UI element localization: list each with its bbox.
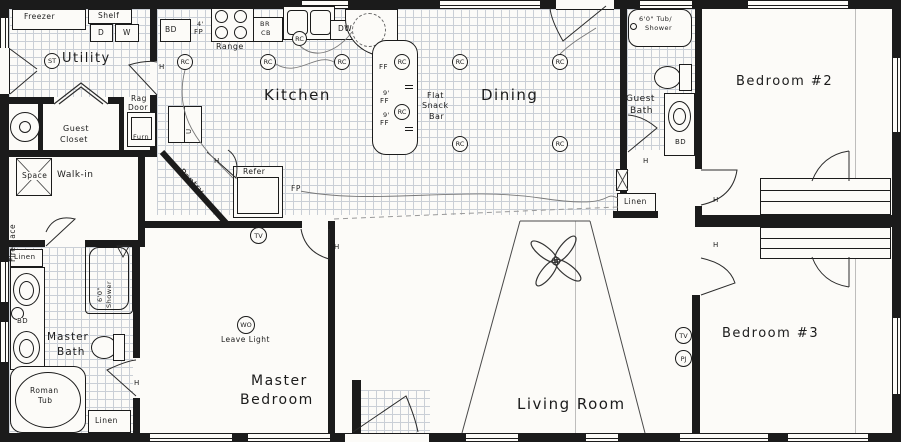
- outlet-tick: [405, 127, 413, 128]
- dishwasher-label: DW: [338, 25, 352, 33]
- window: [248, 433, 330, 442]
- bd-label-guest-bath: BD: [675, 139, 686, 146]
- upper-cabinet-door-split: [184, 106, 185, 143]
- bedroom2-closet-door: [812, 151, 849, 181]
- symbol-text: RC: [264, 58, 273, 66]
- window: [892, 318, 901, 394]
- wall-guest-bath-right-a: [695, 9, 702, 169]
- snack-bar-label-1: Flat: [427, 92, 444, 100]
- window: [466, 433, 518, 442]
- bedroom3-closet-door: [812, 257, 849, 287]
- nine-ft-label-1: 9': [383, 90, 390, 97]
- room-label-dining: Dining: [481, 88, 538, 103]
- master-toilet-tank: [113, 334, 125, 361]
- hinge-label: H: [643, 158, 649, 165]
- sink-bowl: [310, 10, 331, 35]
- symbol-text: RC: [398, 58, 407, 66]
- bedroom3-door: [701, 258, 735, 295]
- refrigerator-label: Refer: [243, 168, 265, 176]
- roman-tub-label-1: Roman: [30, 387, 59, 395]
- wall-utility-bottom-b: [108, 97, 124, 104]
- room-label-master-bath-2: Bath: [57, 347, 85, 358]
- receptacle-symbol: RC: [394, 104, 410, 120]
- leave-light-note: Leave Light: [221, 336, 270, 344]
- freezer-label: Freezer: [24, 13, 55, 21]
- burner: [234, 26, 247, 39]
- wall-master-bath-right-a: [133, 247, 140, 358]
- hinge-label: H: [134, 380, 140, 387]
- vent-box: [616, 169, 628, 191]
- receptacle-symbol: RC: [292, 31, 307, 46]
- master-shower-label-1: 6'0": [97, 262, 104, 302]
- ceiling-light-fixture-inner: [19, 121, 31, 133]
- tv-outlet-symbol: TV: [250, 227, 267, 244]
- symbol-text: RC: [338, 58, 347, 66]
- thermostat-symbol: ST: [44, 53, 60, 69]
- master-bedroom-door: [301, 229, 329, 259]
- closet-shelf-line: [760, 248, 891, 249]
- receptacle-symbol: RC: [260, 54, 276, 70]
- hinge-label: H: [159, 64, 165, 71]
- rag-door-label-2: Door: [128, 104, 148, 112]
- window: [748, 0, 848, 9]
- guest-toilet-tank: [679, 64, 692, 91]
- floor-plan: Utility Kitchen Dining Living Room Maste…: [0, 0, 901, 442]
- hinge-label: H: [214, 158, 220, 165]
- burner: [215, 26, 228, 39]
- hinge-label: H: [713, 242, 719, 249]
- room-label-bedroom3: Bedroom #3: [722, 327, 819, 340]
- ridge-line-bedroom3: [855, 258, 856, 433]
- upper-cabinet-label: U: [186, 116, 193, 134]
- filler-width-label: 4': [197, 21, 204, 28]
- symbol-text: RC: [556, 140, 565, 148]
- rear-door-opening: [556, 0, 614, 10]
- room-label-bedroom2: Bedroom #2: [736, 75, 833, 88]
- master-shower-label-2: Shower: [106, 256, 113, 308]
- room-label-master-bath-1: Master: [47, 332, 89, 343]
- window: [586, 433, 618, 442]
- room-label-guest-closet-2: Closet: [60, 136, 88, 144]
- room-label-walkin: Walk-in: [57, 171, 94, 180]
- receptacle-symbol: RC: [394, 54, 410, 70]
- linen-label-hall: Linen: [624, 198, 647, 206]
- symbol-text: TV: [254, 232, 262, 240]
- cb-label: CB: [261, 30, 271, 37]
- range-label: Range: [216, 43, 244, 51]
- window: [0, 322, 9, 362]
- roman-tub-label-2: Tub: [38, 397, 52, 405]
- walkin-bath-door: [46, 218, 75, 246]
- outlet-tick: [405, 130, 413, 131]
- rag-door-label-1: Rag: [131, 95, 147, 103]
- symbol-text: RC: [456, 140, 465, 148]
- tub-shower-label-2: Shower: [645, 25, 672, 32]
- fan-blade: [552, 256, 584, 284]
- ff-label-2: FF: [380, 98, 389, 105]
- tub-shower-label-1: 6'0" Tub/: [639, 16, 672, 23]
- upper-cabinet: [168, 106, 202, 143]
- symbol-text: RC: [556, 58, 565, 66]
- window: [680, 433, 768, 442]
- window: [640, 0, 692, 9]
- window: [892, 58, 901, 132]
- room-label-master-bedroom-1: Master: [251, 374, 308, 388]
- dryer-label: D: [98, 29, 104, 37]
- linen-label-bath2: Linen: [95, 417, 118, 425]
- phone-jack-symbol: PJ: [675, 350, 692, 367]
- side-door-opening: [0, 48, 10, 94]
- symbol-text: PJ: [681, 355, 687, 363]
- closet-rod-line: [760, 190, 891, 191]
- wall-furnace-closet-left: [119, 104, 124, 151]
- outlet-tick: [405, 88, 413, 89]
- bedroom3-closet: [760, 227, 891, 259]
- wall-master-bedroom-top: [140, 221, 302, 228]
- linen-label-bath1: Linen: [14, 254, 36, 261]
- fp-label-refer: FP: [291, 185, 301, 193]
- room-label-master-bedroom-2: Bedroom: [240, 393, 314, 407]
- window: [150, 433, 232, 442]
- bd-label-master-bath: BD: [17, 318, 28, 325]
- nine-ft-label-2: 9': [383, 112, 390, 119]
- room-label-living-room: Living Room: [517, 397, 626, 412]
- wall-walkin-right: [138, 157, 145, 247]
- fan-blade: [528, 238, 560, 266]
- window: [0, 18, 9, 50]
- wall-master-bath-right-b: [133, 398, 140, 433]
- window: [440, 0, 540, 9]
- front-door-opening: [345, 433, 429, 442]
- bedroom2-closet: [760, 178, 891, 215]
- room-label-guest-closet-1: Guest: [63, 125, 89, 133]
- symbol-text: RC: [398, 108, 407, 116]
- burner: [215, 10, 228, 23]
- bedroom2-door: [701, 170, 737, 205]
- shelf-label: Shelf: [98, 12, 119, 20]
- hinge-label: H: [713, 197, 719, 204]
- fireplace-label: Fireplace: [9, 170, 17, 262]
- receptacle-symbol: RC: [334, 54, 350, 70]
- ff-label-3: FF: [380, 120, 389, 127]
- wall-entry-jamb: [352, 380, 361, 433]
- room-label-kitchen: Kitchen: [264, 88, 331, 103]
- refrigerator-box-inner: [237, 177, 279, 214]
- closet-rod-line: [760, 238, 891, 239]
- furnace-label: Furn: [133, 134, 149, 141]
- tub-drain: [630, 23, 637, 30]
- symbol-text: RC: [181, 58, 190, 66]
- bd-label-kitchen: BD: [165, 26, 177, 34]
- room-label-utility: Utility: [62, 52, 111, 65]
- receptacle-symbol: RC: [452, 54, 468, 70]
- fan-hub: [552, 257, 560, 265]
- receptacle-symbol: RC: [452, 136, 468, 152]
- symbol-text: TV: [679, 332, 687, 340]
- wall-walkin-top: [9, 150, 157, 157]
- symbol-text: RC: [456, 58, 465, 66]
- closet-shelf-line: [760, 201, 891, 202]
- guest-toilet-bowl: [654, 66, 681, 89]
- snack-bar-label-2: Snack: [422, 102, 449, 110]
- symbol-text: WO: [240, 321, 252, 329]
- entry-floor-tile: [352, 390, 430, 433]
- ff-label-1: FF: [379, 64, 388, 71]
- wired-outlet-symbol: WO: [237, 316, 255, 334]
- wall-bedroom-divider: [695, 215, 899, 227]
- burner: [234, 10, 247, 23]
- room-label-guest-bath-2: Bath: [630, 107, 653, 116]
- wall-master-bedroom-right: [328, 221, 335, 433]
- receptacle-symbol: RC: [177, 54, 193, 70]
- br-label: BR: [260, 21, 270, 28]
- wall-utility-bottom-a: [9, 97, 54, 104]
- guest-sink-inner: [673, 108, 686, 125]
- space-label: Space: [22, 172, 47, 180]
- master-sink-inner: [19, 281, 34, 300]
- master-sink-inner: [19, 339, 34, 358]
- hinge-label: H: [334, 244, 340, 251]
- receptacle-symbol: RC: [552, 54, 568, 70]
- symbol-text: ST: [48, 57, 56, 65]
- washer-label: W: [123, 29, 131, 37]
- outlet-tick: [405, 85, 413, 86]
- snack-bar-label-3: Bar: [429, 113, 444, 121]
- window: [0, 262, 9, 302]
- wall-utility-right-upper: [150, 9, 157, 61]
- fan-blade: [533, 257, 561, 289]
- wall-bedroom3-left: [692, 295, 700, 433]
- fp-label-kitchen: FP: [194, 29, 203, 36]
- window: [788, 433, 868, 442]
- receptacle-symbol: RC: [552, 136, 568, 152]
- wall-hall-linen: [613, 211, 658, 218]
- symbol-text: RC: [295, 35, 304, 43]
- tv-outlet-symbol: TV: [675, 327, 692, 344]
- room-label-guest-bath-1: Guest: [626, 95, 655, 104]
